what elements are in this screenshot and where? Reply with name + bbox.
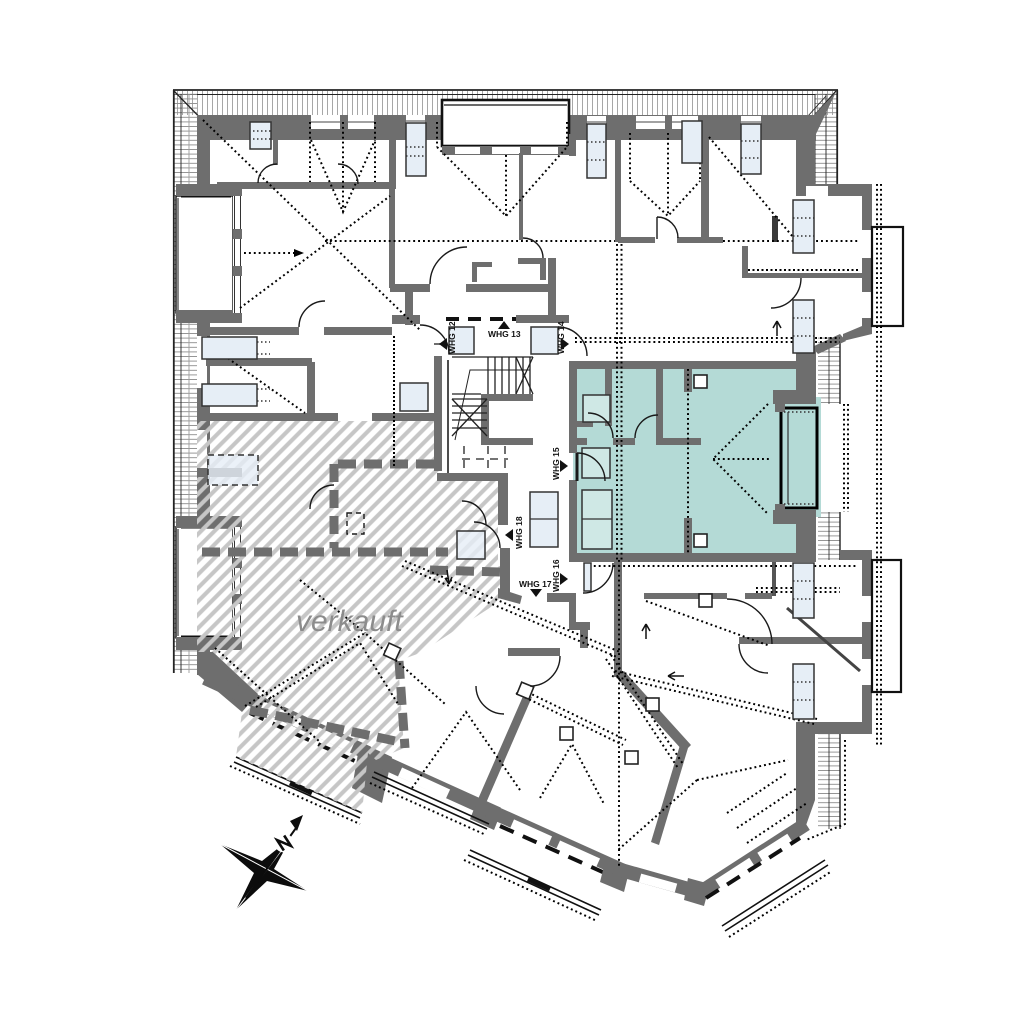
svg-text:WHG 16: WHG 16 [551,559,561,592]
svg-text:WHG 15: WHG 15 [551,447,561,480]
svg-text:WHG 17: WHG 17 [519,579,552,589]
svg-text:verkauft: verkauft [296,605,404,638]
svg-text:WHG 18: WHG 18 [514,516,524,549]
svg-text:WHG 12: WHG 12 [447,321,457,354]
svg-text:WHG 13: WHG 13 [488,329,521,339]
